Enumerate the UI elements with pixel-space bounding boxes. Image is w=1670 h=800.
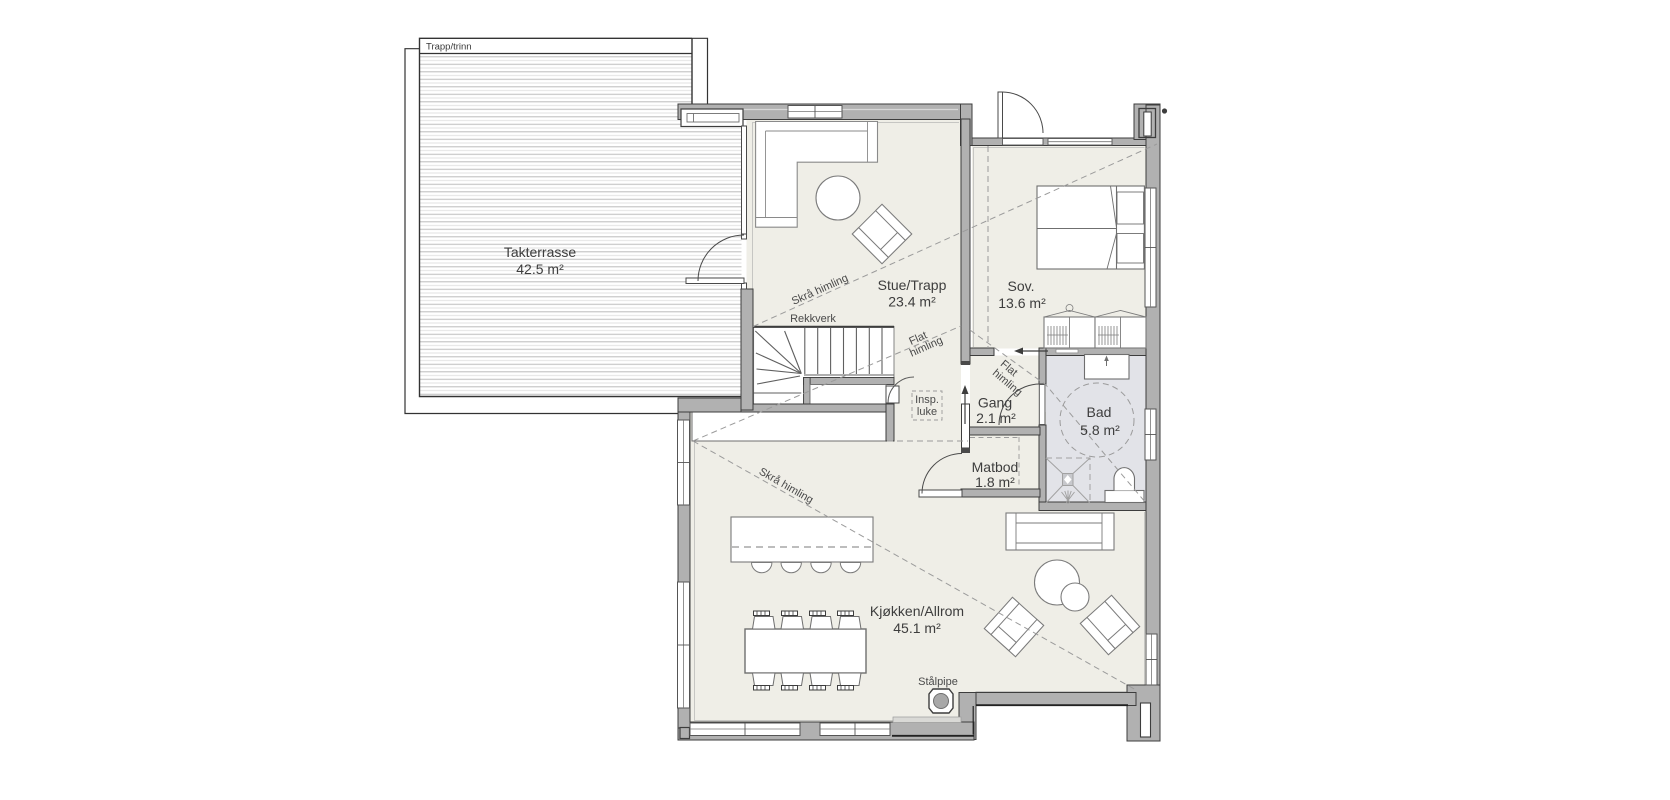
svg-text:Trapp/trinn: Trapp/trinn (426, 41, 472, 52)
svg-text:42.5 m²: 42.5 m² (516, 261, 564, 277)
svg-text:Stue/Trapp: Stue/Trapp (878, 277, 947, 293)
svg-text:Matbod: Matbod (972, 459, 1019, 475)
svg-text:45.1 m²: 45.1 m² (893, 620, 941, 636)
svg-text:13.6 m²: 13.6 m² (998, 295, 1046, 311)
svg-text:Kjøkken/Allrom: Kjøkken/Allrom (870, 603, 964, 619)
svg-text:Sov.: Sov. (1008, 278, 1035, 294)
svg-text:luke: luke (917, 406, 937, 418)
svg-text:Rekkverk: Rekkverk (790, 313, 836, 325)
svg-text:Insp.: Insp. (915, 394, 939, 406)
svg-text:23.4 m²: 23.4 m² (888, 294, 936, 310)
svg-text:Bad: Bad (1087, 404, 1112, 420)
svg-text:Stålpipe: Stålpipe (918, 676, 958, 688)
svg-text:2.1 m²: 2.1 m² (976, 410, 1016, 426)
svg-text:Takterrasse: Takterrasse (504, 244, 577, 260)
svg-text:1.8 m²: 1.8 m² (975, 474, 1015, 490)
svg-text:Gang: Gang (978, 395, 1012, 411)
svg-text:5.8 m²: 5.8 m² (1080, 422, 1120, 438)
